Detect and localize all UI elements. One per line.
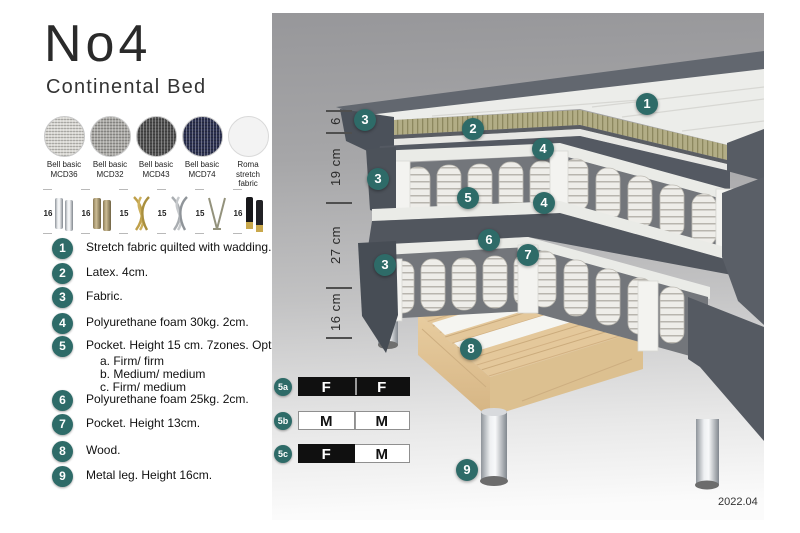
feature-text: Polyurethane foam 30kg. 2cm. [86, 313, 301, 334]
callout-badge: 4 [532, 138, 554, 160]
callout-badge: 3 [354, 109, 376, 131]
feature-text: Pocket. Height 13cm. [86, 414, 301, 435]
callout-badge: 8 [460, 338, 482, 360]
feature-number-badge: 7 [52, 414, 73, 435]
feature-number-badge: 8 [52, 441, 73, 462]
leg-option: 16 [232, 186, 269, 240]
feature-number-badge: 5 [52, 336, 73, 357]
leg-icon-hairpin [205, 193, 229, 233]
firmness-badge: 5b [274, 412, 292, 430]
feature-item: 3 Fabric. [52, 287, 301, 308]
feature-item: 9 Metal leg. Height 16cm. [52, 466, 301, 487]
fabric-swatch: Bell basicMCD43 [134, 116, 178, 189]
callout-badge: 1 [636, 93, 658, 115]
leg-icon-cylinder-silver [53, 193, 77, 233]
fabric-swatch: Bell basicMCD74 [180, 116, 224, 189]
feature-item: 7 Pocket. Height 13cm. [52, 414, 301, 435]
feature-number-badge: 1 [52, 238, 73, 259]
feature-text: Pocket. Height 15 cm. 7zones. Option: a.… [86, 336, 301, 394]
product-sheet: { "header": {"title": "No4", "subtitle":… [0, 0, 800, 533]
leg-option: 15 [156, 186, 193, 240]
firmness-row-5a: 5a F F [274, 377, 410, 396]
leg-icon-twisted-silver [167, 193, 191, 233]
leg-option: 15 [194, 186, 231, 240]
leg-icon-twisted-gold [129, 193, 153, 233]
fabric-swatch-circle [136, 116, 177, 157]
firmness-row-5c: 5c F M [274, 444, 410, 463]
feature-item: 4 Polyurethane foam 30kg. 2cm. [52, 313, 301, 334]
feature-item: 2 Latex. 4cm. [52, 263, 301, 284]
feature-number-badge: 3 [52, 287, 73, 308]
firmness-cell: F [355, 377, 411, 396]
callout-badge: 3 [367, 168, 389, 190]
dimension-label: 16 cm [329, 282, 343, 342]
feature-text: Polyurethane foam 25kg. 2cm. [86, 390, 301, 411]
fabric-swatch-circle [44, 116, 85, 157]
firmness-row-5b: 5b M M [274, 411, 410, 430]
feature-number-badge: 4 [52, 313, 73, 334]
dimension-tick [326, 202, 352, 204]
callout-badge: 9 [456, 459, 478, 481]
feature-number-badge: 6 [52, 390, 73, 411]
callout-badge: 2 [462, 118, 484, 140]
leg-icon-cylinder-brass [91, 193, 115, 233]
fabric-swatch-circle [182, 116, 223, 157]
page-subtitle: Continental Bed [46, 76, 206, 99]
firmness-badge: 5c [274, 445, 292, 463]
fabric-swatch-circle [90, 116, 131, 157]
illustration-panel: 6 19 cm 27 cm 16 cm 1 2 3 4 3 5 4 6 7 3 … [272, 13, 764, 520]
leg-option: 16 [42, 186, 79, 240]
version-stamp: 2022.04 [718, 496, 758, 508]
dimension-label: 27 cm [329, 215, 343, 275]
callout-badge: 4 [533, 192, 555, 214]
feature-item: 5 Pocket. Height 15 cm. 7zones. Option: … [52, 336, 301, 394]
firmness-badge: 5a [274, 378, 292, 396]
firmness-bar: F M [298, 444, 410, 463]
leg-option: 16 [80, 186, 117, 240]
firmness-cell: F [298, 377, 355, 396]
fabric-swatch-row: Bell basicMCD36 Bell basicMCD32 Bell bas… [42, 116, 270, 189]
fabric-swatch: Romastretch fabric [226, 116, 270, 189]
page-title: No4 [44, 14, 151, 74]
feature-item: 8 Wood. [52, 441, 301, 462]
firmness-cell: M [355, 411, 411, 430]
feature-item: 6 Polyurethane foam 25kg. 2cm. [52, 390, 301, 411]
feature-text: Fabric. [86, 287, 301, 308]
feature-text: Metal leg. Height 16cm. [86, 466, 301, 487]
feature-text: Stretch fabric quilted with wadding. [86, 238, 301, 259]
fabric-swatch-circle [228, 116, 269, 157]
firmness-bar: F F [298, 377, 410, 396]
firmness-cell: M [355, 444, 411, 463]
feature-text: Wood. [86, 441, 301, 462]
dimension-label: 19 cm [329, 137, 343, 197]
feature-item: 1 Stretch fabric quilted with wadding. [52, 238, 301, 259]
leg-option: 15 [118, 186, 155, 240]
callout-badge: 7 [517, 244, 539, 266]
callout-badge: 3 [374, 254, 396, 276]
firmness-cell: M [298, 411, 355, 430]
firmness-bar: M M [298, 411, 410, 430]
feature-number-badge: 9 [52, 466, 73, 487]
feature-number-badge: 2 [52, 263, 73, 284]
callout-badge: 6 [478, 229, 500, 251]
fabric-swatch: Bell basicMCD32 [88, 116, 132, 189]
leg-options-row: 16 16 15 15 15 1 [42, 186, 269, 240]
callout-badge: 5 [457, 187, 479, 209]
feature-options: a. Firm/ firm b. Medium/ medium c. Firm/… [100, 355, 301, 394]
firmness-cell: F [298, 444, 355, 463]
leg-icon-cylinder-black-gold [243, 193, 267, 233]
fabric-swatch: Bell basicMCD36 [42, 116, 86, 189]
feature-text: Latex. 4cm. [86, 263, 301, 284]
